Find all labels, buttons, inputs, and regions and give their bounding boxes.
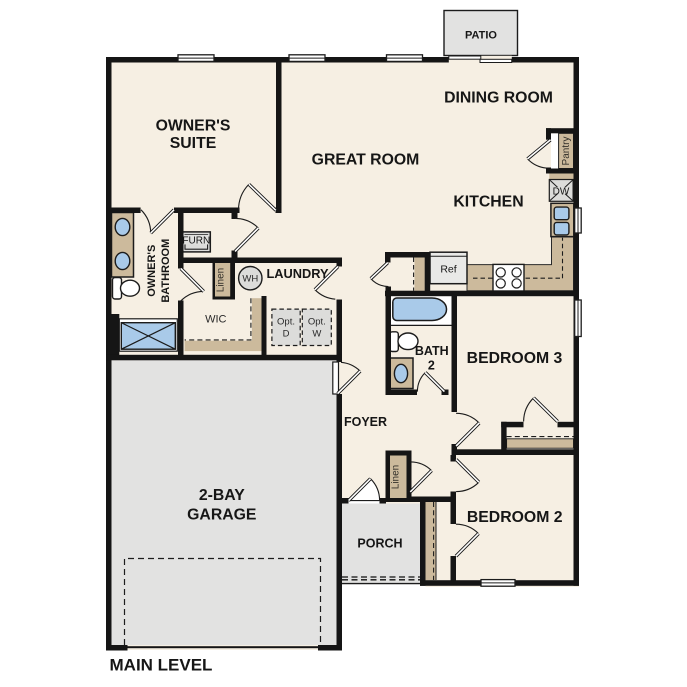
svg-text:BATH: BATH: [415, 344, 449, 358]
svg-text:BEDROOM 3: BEDROOM 3: [467, 350, 563, 367]
svg-text:Opt.: Opt.: [308, 317, 326, 328]
svg-text:SUITE: SUITE: [170, 135, 217, 152]
svg-text:FOYER: FOYER: [344, 415, 387, 429]
svg-text:PORCH: PORCH: [357, 537, 402, 551]
svg-text:MAIN LEVEL: MAIN LEVEL: [110, 655, 213, 674]
svg-text:2: 2: [428, 359, 435, 373]
svg-text:OWNER'S: OWNER'S: [146, 245, 158, 297]
svg-text:W: W: [312, 329, 321, 340]
svg-text:Pantry: Pantry: [561, 137, 572, 166]
svg-text:Ref: Ref: [440, 264, 456, 276]
svg-text:Linen: Linen: [216, 268, 227, 292]
svg-text:2-BAY: 2-BAY: [199, 487, 245, 504]
svg-text:DW: DW: [553, 186, 570, 197]
svg-text:FURN: FURN: [182, 235, 210, 246]
svg-text:GARAGE: GARAGE: [187, 507, 256, 524]
svg-text:BEDROOM 2: BEDROOM 2: [467, 509, 563, 526]
svg-text:WIC: WIC: [205, 314, 226, 326]
svg-text:Linen: Linen: [391, 465, 402, 489]
svg-text:BATHROOM: BATHROOM: [160, 239, 172, 303]
svg-text:KITCHEN: KITCHEN: [453, 193, 523, 210]
svg-text:OWNER'S: OWNER'S: [156, 117, 231, 134]
svg-text:DINING ROOM: DINING ROOM: [444, 89, 553, 106]
svg-text:LAUNDRY: LAUNDRY: [266, 266, 329, 281]
svg-text:WH: WH: [242, 274, 258, 285]
svg-text:Opt.: Opt.: [277, 317, 295, 328]
svg-text:GREAT ROOM: GREAT ROOM: [312, 152, 420, 169]
svg-text:PATIO: PATIO: [465, 29, 497, 41]
svg-text:D: D: [283, 329, 290, 340]
